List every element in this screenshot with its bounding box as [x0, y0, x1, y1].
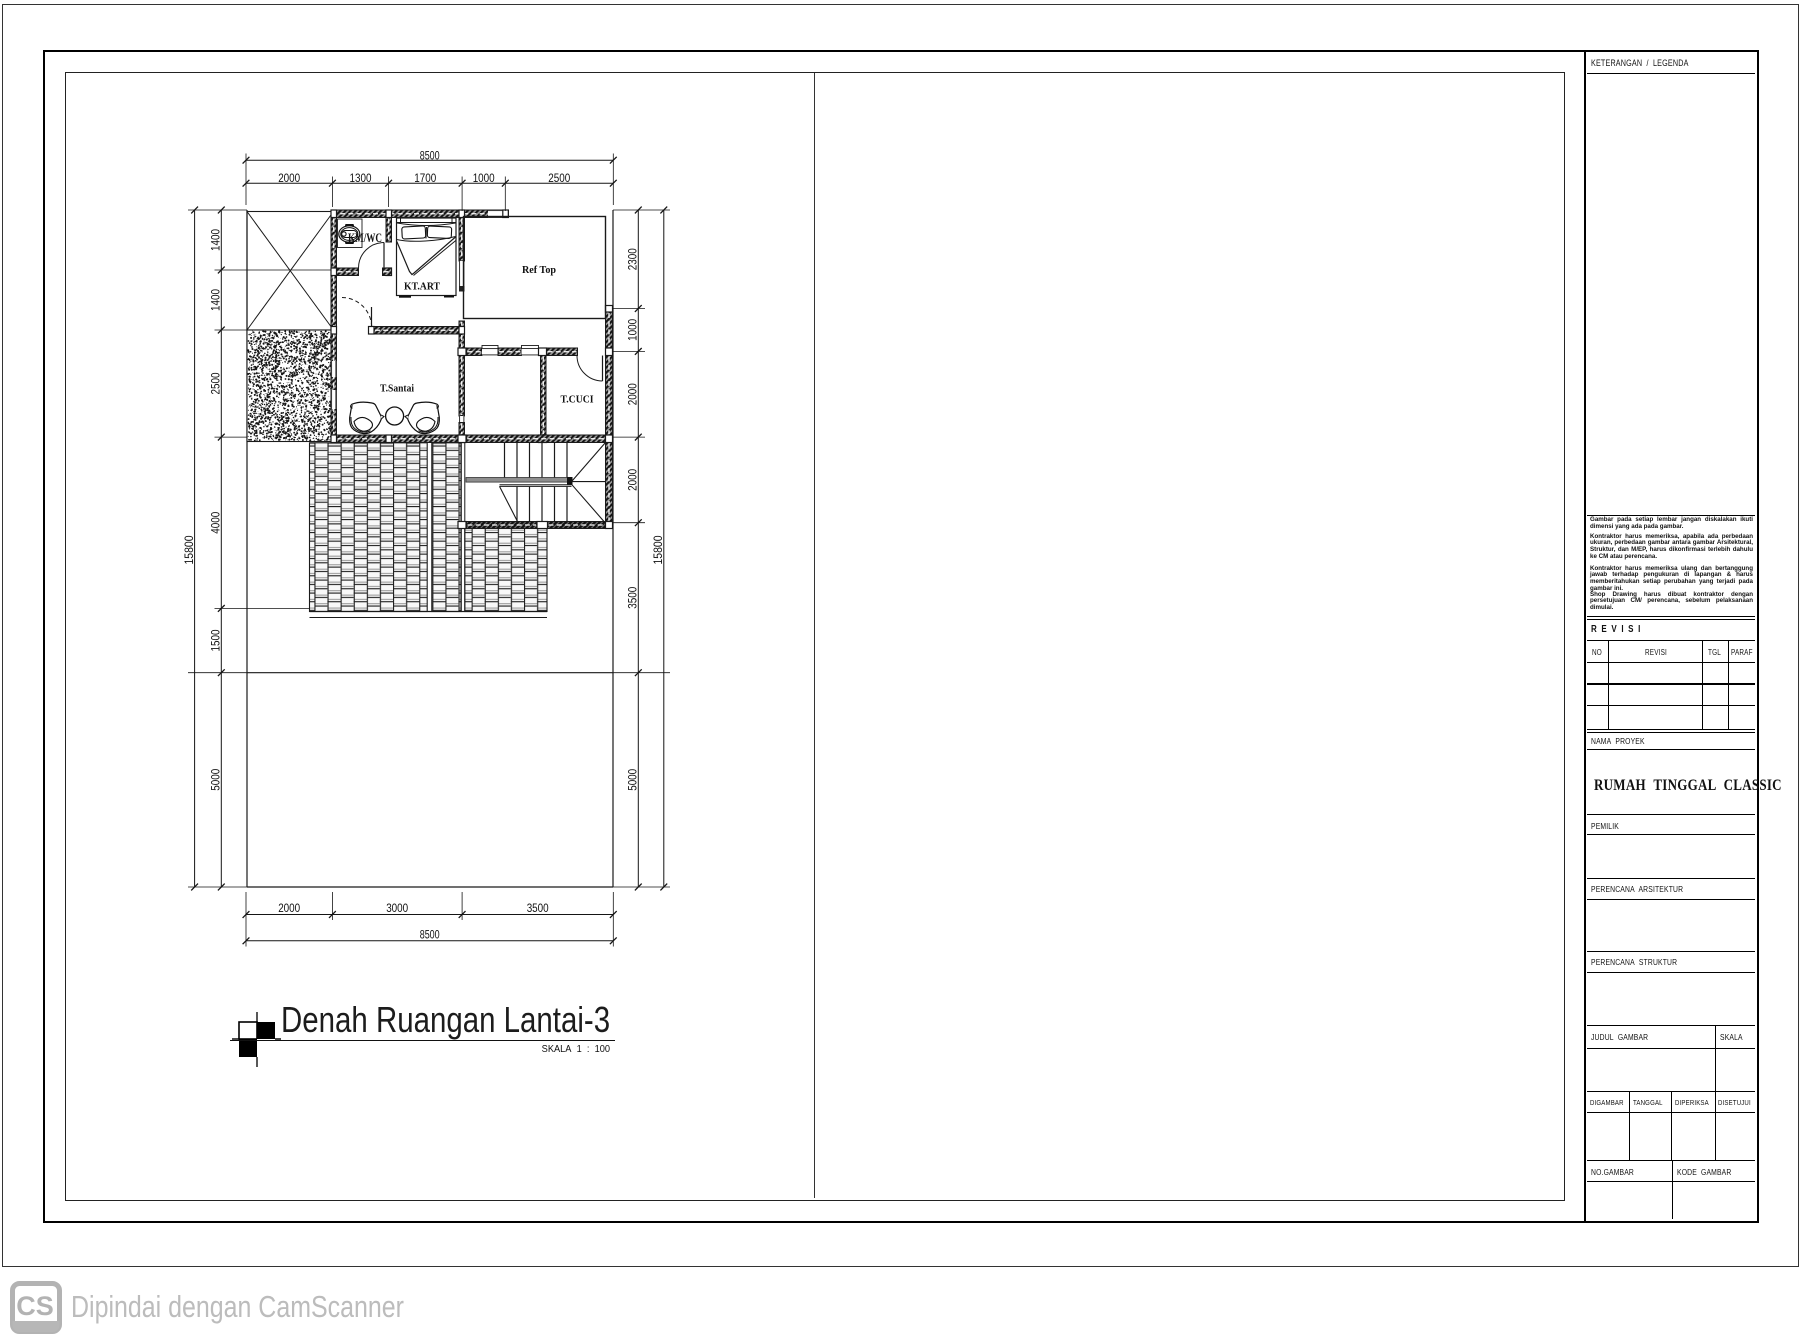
svg-text:1700: 1700 [414, 173, 436, 185]
svg-text:5000: 5000 [211, 769, 223, 791]
svg-text:3000: 3000 [386, 903, 408, 915]
svg-text:4000: 4000 [211, 512, 223, 534]
svg-text:CS: CS [16, 1291, 54, 1321]
svg-text:2000: 2000 [627, 469, 639, 491]
svg-text:KM/WC: KM/WC [348, 231, 382, 245]
svg-text:2000: 2000 [278, 173, 300, 185]
svg-text:T.Santai: T.Santai [380, 384, 414, 395]
svg-text:1300: 1300 [350, 173, 372, 185]
svg-text:8500: 8500 [420, 150, 440, 162]
svg-text:T.CUCI: T.CUCI [561, 395, 594, 406]
svg-text:15800: 15800 [184, 536, 196, 565]
svg-text:1500: 1500 [211, 630, 223, 652]
svg-text:2500: 2500 [211, 373, 223, 395]
svg-text:8500: 8500 [420, 930, 440, 942]
svg-text:1400: 1400 [211, 229, 223, 251]
svg-text:Ref Top: Ref Top [522, 265, 556, 276]
svg-text:15800: 15800 [653, 536, 665, 565]
svg-text:2000: 2000 [627, 383, 639, 405]
svg-text:2500: 2500 [548, 173, 570, 185]
svg-text:KT.ART: KT.ART [404, 282, 440, 293]
svg-text:5000: 5000 [627, 769, 639, 791]
svg-text:2000: 2000 [278, 903, 300, 915]
svg-text:1000: 1000 [627, 319, 639, 341]
svg-text:3500: 3500 [627, 587, 639, 609]
svg-text:3500: 3500 [527, 903, 549, 915]
svg-text:1400: 1400 [211, 289, 223, 311]
svg-text:1000: 1000 [473, 173, 495, 185]
svg-text:2300: 2300 [627, 248, 639, 270]
